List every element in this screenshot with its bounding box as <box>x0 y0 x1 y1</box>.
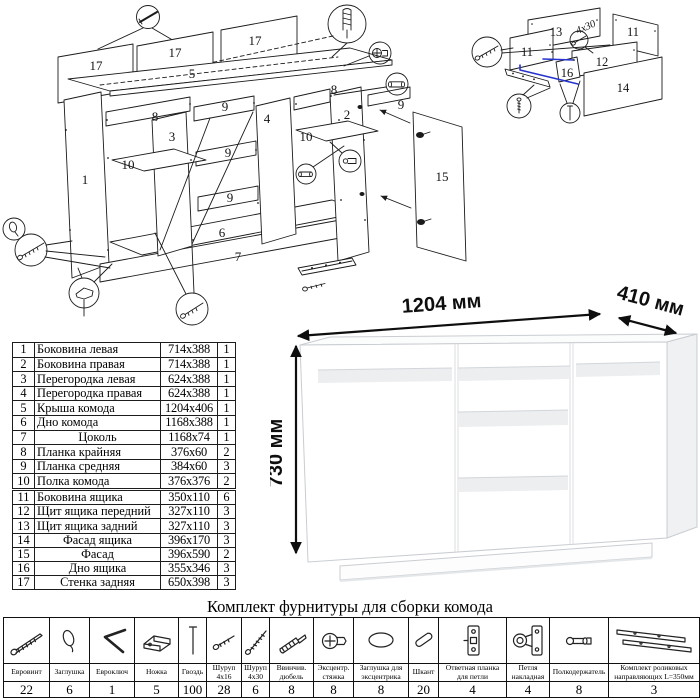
part-size: 624x388 <box>161 386 218 401</box>
hinge-icon <box>507 618 549 663</box>
parts-table-row: 16 Дно ящика 355x346 3 <box>13 561 236 575</box>
part-label: 11 <box>627 25 639 39</box>
hardware-kit-title: Комплект фурнитуры для сборки комода <box>0 597 700 617</box>
hardware-item-label: Ножка <box>135 663 178 681</box>
plug-cap-icon <box>50 618 89 663</box>
parts-table-row: 2 Боковина правая 714x388 1 <box>13 357 236 372</box>
part-size: 350x110 <box>161 491 218 505</box>
part-name: Боковина правая <box>35 357 161 372</box>
hardware-item-shurup-4x30: Шуруп 4х30 6 <box>241 618 269 697</box>
parts-table-row: 4 Перегородка правая 624x388 1 <box>13 386 236 401</box>
eccentric-cam-icon <box>314 618 353 663</box>
part-number: 4 <box>13 386 35 401</box>
part-qty: 1 <box>218 343 236 358</box>
hardware-item-qty: 8 <box>550 681 608 697</box>
part-name: Дно комода <box>35 415 161 430</box>
part-number: 16 <box>13 561 35 575</box>
part-size: 714x388 <box>161 357 218 372</box>
hardware-item-polkoderzhatel: Полкодержатель 8 <box>549 618 608 697</box>
part-qty: 3 <box>218 533 236 547</box>
hardware-item-zaglushka-ekscentrika: Заглушка для эксцентрика 8 <box>353 618 408 697</box>
parts-table-carcass: 1 Боковина левая 714x388 1 2 Боковина пр… <box>12 342 236 489</box>
parts-table-row: 5 Крыша комода 1204x406 1 <box>13 401 236 416</box>
part-door <box>358 105 467 261</box>
hardware-item-zaglushka: Заглушка 6 <box>49 618 89 697</box>
part-name: Щит ящика задний <box>35 519 161 533</box>
part-name: Дно ящика <box>35 561 161 575</box>
hardware-item-qty: 6 <box>50 681 89 697</box>
part-label: 7 <box>235 249 242 264</box>
part-name: Планка средняя <box>35 459 161 474</box>
part-number: 11 <box>13 491 35 505</box>
part-qty: 1 <box>218 430 236 445</box>
part-size: 714x388 <box>161 343 218 358</box>
part-number: 3 <box>13 372 35 387</box>
part-name: Щит ящика передний <box>35 505 161 519</box>
part-name: Стенка задняя <box>35 576 161 590</box>
hardware-kit-table: Евровинт 22 Заглушка 6 Евроключ 1 Ножка … <box>3 617 700 698</box>
part-label: 15 <box>436 169 449 184</box>
part-label: 10 <box>300 129 313 144</box>
part-size: 327x110 <box>161 519 218 533</box>
width-dimension-arrow <box>298 314 600 336</box>
part-label: 10 <box>122 157 135 172</box>
nail-icon <box>179 618 206 663</box>
part-name: Фасад ящика <box>35 533 161 547</box>
door-right-handle-groove <box>576 362 660 377</box>
hardware-item-label: Заглушка <box>50 663 89 681</box>
hardware-item-ekscentr-styazhka: Эксцентр. стяжка 8 <box>313 618 353 697</box>
hardware-item-shkant: Шкант 20 <box>408 618 438 697</box>
part-qty: 1 <box>218 386 236 401</box>
screw-in-dowel-icon <box>270 618 313 663</box>
hardware-item-label: Полкодержатель <box>550 663 608 681</box>
hardware-item-vvinchiv-dyubel: Ввинчив. дюбель 8 <box>269 618 313 697</box>
part-name: Цоколь <box>35 430 161 445</box>
width-dimension-label: 1204 мм <box>401 290 482 318</box>
depth-dimension-arrow <box>619 318 676 333</box>
parts-table-row: 11 Боковина ящика 350x110 6 <box>13 491 236 505</box>
part-size: 1168x74 <box>161 430 218 445</box>
part-qty: 3 <box>218 505 236 519</box>
part-partition-right <box>256 98 296 244</box>
part-number: 2 <box>13 357 35 372</box>
hardware-item-qty: 3 <box>609 681 699 697</box>
part-qty: 3 <box>218 561 236 575</box>
hardware-item-label: Шуруп 4х30 <box>242 663 269 681</box>
hinge-plate-icon <box>439 618 506 663</box>
hardware-item-nozhka: Ножка 5 <box>134 618 178 697</box>
part-qty: 1 <box>218 372 236 387</box>
part-qty: 2 <box>218 547 236 561</box>
part-number: 12 <box>13 505 35 519</box>
door-mount-arrow <box>380 110 410 123</box>
part-qty: 3 <box>218 459 236 474</box>
parts-table-row: 15 Фасад 396x590 2 <box>13 547 236 561</box>
part-number: 10 <box>13 474 35 489</box>
dresser-right-side <box>667 334 697 538</box>
part-name: Перегородка правая <box>35 386 161 401</box>
hardware-item-evroklyuch: Евроключ 1 <box>89 618 134 697</box>
hardware-item-gvozd: Гвоздь 100 <box>178 618 206 697</box>
screw-small-icon <box>207 618 241 663</box>
hardware-item-label: Эксцентр. стяжка <box>314 663 353 681</box>
hardware-item-label: Ввинчив. дюбель <box>270 663 313 681</box>
parts-table-row: 12 Щит ящика передний 327x110 3 <box>13 505 236 519</box>
hardware-item-roller-guides: Комплект роликовых направляющих L=350мм … <box>608 618 699 697</box>
part-label: 6 <box>219 225 226 240</box>
assembly-instruction-sheet: 1717175889999342110106715 <box>0 0 700 700</box>
part-label: 3 <box>169 129 176 144</box>
hardware-item-qty: 8 <box>354 681 408 697</box>
hardware-item-label: Шкант <box>409 663 438 681</box>
part-label: 13 <box>550 25 563 39</box>
part-label: 16 <box>561 66 574 80</box>
part-number: 15 <box>13 547 35 561</box>
part-size: 384x60 <box>161 459 218 474</box>
dowel-icon <box>409 618 438 663</box>
parts-table-row: 17 Стенка задняя 650x398 3 <box>13 576 236 590</box>
part-label: 4 <box>264 111 271 126</box>
part-qty: 1 <box>218 401 236 416</box>
part-size: 624x388 <box>161 372 218 387</box>
callout-screw-icon <box>507 85 550 118</box>
part-qty: 3 <box>218 519 236 533</box>
part-number: 5 <box>13 401 35 416</box>
hex-key-icon <box>90 618 134 663</box>
parts-table-row: 13 Щит ящика задний 327x110 3 <box>13 519 236 533</box>
part-number: 6 <box>13 415 35 430</box>
parts-table-drawers: 11 Боковина ящика 350x110 6 12 Щит ящика… <box>12 490 236 590</box>
hardware-item-qty: 28 <box>207 681 241 697</box>
part-name: Крыша комода <box>35 401 161 416</box>
part-label: 9 <box>398 97 405 112</box>
part-size: 1168x388 <box>161 415 218 430</box>
part-qty: 2 <box>218 445 236 460</box>
part-label: 11 <box>521 45 533 59</box>
hardware-item-qty: 4 <box>507 681 549 697</box>
foot-icon <box>135 618 178 663</box>
hardware-item-label: Заглушка для эксцентрика <box>354 663 408 681</box>
parts-table-row: 7 Цоколь 1168x74 1 <box>13 430 236 445</box>
part-label: 9 <box>225 145 232 160</box>
hardware-item-qty: 5 <box>135 681 178 697</box>
drawer1-handle-groove <box>458 366 570 381</box>
hardware-item-petlya: Петля накладная 4 <box>506 618 549 697</box>
part-label: 14 <box>617 81 630 95</box>
part-number: 7 <box>13 430 35 445</box>
hardware-item-eurovint: Евровинт 22 <box>4 618 49 697</box>
part-number: 17 <box>13 576 35 590</box>
hardware-item-label: Петля накладная <box>507 663 549 681</box>
hardware-item-label: Комплект роликовых направляющих L=350мм <box>609 663 699 681</box>
part-name: Планка крайняя <box>35 445 161 460</box>
drawer-exploded-diagram: 131111121614 4х30 <box>460 0 700 135</box>
part-size: 355x346 <box>161 561 218 575</box>
part-number: 13 <box>13 519 35 533</box>
hardware-item-label: Евровинт <box>4 663 49 681</box>
hardware-item-qty: 1 <box>90 681 134 697</box>
part-qty: 1 <box>218 357 236 372</box>
part-label: 8 <box>152 109 159 124</box>
part-size: 376x376 <box>161 474 218 489</box>
part-number: 14 <box>13 533 35 547</box>
part-number: 9 <box>13 459 35 474</box>
door-left-handle-groove <box>318 368 452 383</box>
part-label: 12 <box>596 55 609 69</box>
parts-table-row: 10 Полка комода 376x376 2 <box>13 474 236 489</box>
part-size: 396x590 <box>161 547 218 561</box>
part-label: 17 <box>249 33 263 48</box>
confirmat-screw-icon <box>4 618 49 663</box>
part-size: 327x110 <box>161 505 218 519</box>
part-name: Перегородка левая <box>35 372 161 387</box>
shelf-support-icon <box>550 618 608 663</box>
hardware-item-qty: 8 <box>270 681 313 697</box>
parts-table-row: 9 Планка средняя 384x60 3 <box>13 459 236 474</box>
hardware-item-qty: 100 <box>179 681 206 697</box>
hardware-item-qty: 8 <box>314 681 353 697</box>
hardware-item-shurup-4x16: Шуруп 4х16 28 <box>206 618 241 697</box>
part-label: 2 <box>344 107 351 122</box>
part-qty: 2 <box>218 474 236 489</box>
parts-table-row: 6 Дно комода 1168x388 1 <box>13 415 236 430</box>
part-qty: 3 <box>218 576 236 590</box>
part-size: 376x60 <box>161 445 218 460</box>
depth-dimension-label: 410 мм <box>615 285 687 321</box>
door-mount-arrow <box>381 196 411 208</box>
part-label: 17 <box>169 45 183 60</box>
part-label: 17 <box>90 58 104 73</box>
part-qty: 1 <box>218 415 236 430</box>
part-label: 9 <box>222 99 229 114</box>
part-label: 8 <box>331 82 338 97</box>
part-number: 8 <box>13 445 35 460</box>
parts-table-row: 3 Перегородка левая 624x388 1 <box>13 372 236 387</box>
parts-table-row: 8 Планка крайняя 376x60 2 <box>13 445 236 460</box>
hardware-item-qty: 22 <box>4 681 49 697</box>
parts-table-row: 1 Боковина левая 714x388 1 <box>13 343 236 358</box>
callout-nail-icon <box>560 81 580 123</box>
part-label: 5 <box>189 66 196 81</box>
oval-plug-icon <box>354 618 408 663</box>
drawer3-handle-groove <box>458 476 568 492</box>
hardware-item-qty: 20 <box>409 681 438 697</box>
part-qty: 6 <box>218 491 236 505</box>
screw-long-icon <box>242 618 269 663</box>
hardware-item-label: Шуруп 4х16 <box>207 663 241 681</box>
height-dimension-label: 730 мм <box>270 419 287 488</box>
roller-guides-icon <box>609 618 699 663</box>
part-name: Фасад <box>35 547 161 561</box>
part-label: 1 <box>82 172 89 187</box>
hardware-item-qty: 6 <box>242 681 269 697</box>
part-name: Полка комода <box>35 474 161 489</box>
part-size: 650x398 <box>161 576 218 590</box>
part-number: 1 <box>13 343 35 358</box>
hardware-item-label: Гвоздь <box>179 663 206 681</box>
part-label: 9 <box>227 190 234 205</box>
part-name: Боковина ящика <box>35 491 161 505</box>
hardware-item-otvetnaya-planka: Ответная планка для петли 4 <box>438 618 506 697</box>
parts-table-row: 14 Фасад ящика 396x170 3 <box>13 533 236 547</box>
drawer2-handle-groove <box>458 410 568 427</box>
hardware-item-qty: 4 <box>439 681 506 697</box>
hardware-item-label: Евроключ <box>90 663 134 681</box>
part-size: 1204x406 <box>161 401 218 416</box>
hardware-item-label: Ответная планка для петли <box>439 663 506 681</box>
part-name: Боковина левая <box>35 343 161 358</box>
part-size: 396x170 <box>161 533 218 547</box>
dresser-render: 1204 мм 410 мм 730 мм <box>270 285 700 600</box>
